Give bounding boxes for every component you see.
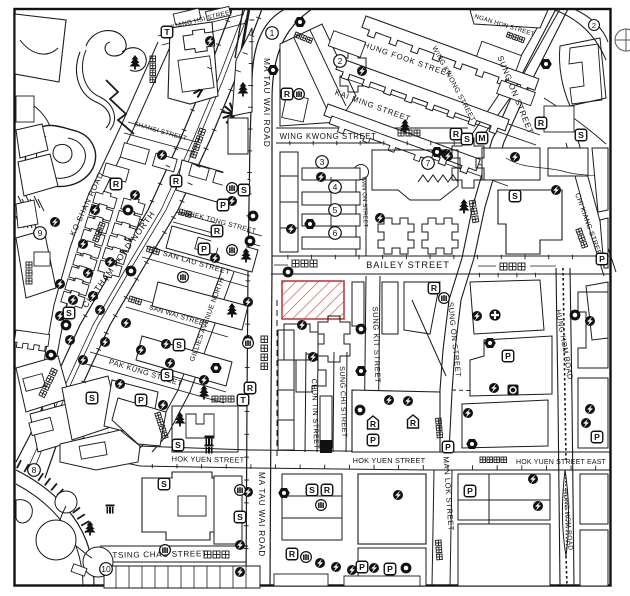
svg-text:10: 10 — [101, 564, 111, 574]
svg-text:S: S — [176, 340, 182, 350]
svg-text:8: 8 — [32, 465, 37, 475]
svg-text:R: R — [324, 485, 331, 495]
svg-text:2: 2 — [338, 56, 343, 66]
svg-text:R: R — [214, 226, 221, 236]
svg-text:S: S — [164, 370, 170, 380]
svg-text:S: S — [161, 479, 167, 489]
svg-text:S: S — [578, 130, 584, 140]
svg-text:HOK YUEN STREET: HOK YUEN STREET — [353, 456, 426, 465]
svg-text:3: 3 — [320, 157, 325, 167]
svg-text:9: 9 — [38, 228, 43, 238]
svg-text:R: R — [173, 176, 180, 186]
svg-text:HOK YUEN STREET: HOK YUEN STREET — [172, 454, 245, 464]
svg-text:5: 5 — [333, 205, 338, 215]
svg-text:P: P — [138, 395, 144, 405]
svg-text:R: R — [431, 283, 438, 293]
svg-text:MA TAU WAI ROAD: MA TAU WAI ROAD — [257, 472, 266, 557]
svg-text:2: 2 — [592, 21, 596, 30]
svg-text:S: S — [66, 308, 72, 318]
svg-text:R: R — [370, 419, 376, 429]
svg-text:BAILEY STREET: BAILEY STREET — [366, 260, 450, 270]
svg-text:R: R — [284, 89, 291, 99]
svg-text:P: P — [201, 244, 207, 254]
svg-text:R: R — [113, 179, 120, 189]
svg-text:WING KWONG STREET: WING KWONG STREET — [280, 132, 377, 141]
svg-text:1: 1 — [270, 28, 275, 38]
svg-text:P: P — [467, 486, 473, 496]
svg-text:6: 6 — [333, 228, 338, 238]
svg-text:T: T — [164, 27, 170, 37]
svg-text:P: P — [594, 432, 600, 442]
svg-text:R: R — [247, 383, 254, 393]
svg-text:P: P — [220, 200, 226, 210]
svg-text:P: P — [387, 564, 393, 574]
svg-text:S: S — [309, 485, 315, 495]
svg-text:R: R — [410, 418, 416, 428]
svg-text:M: M — [478, 133, 485, 143]
svg-text:S: S — [237, 512, 243, 522]
svg-text:S: S — [241, 185, 247, 195]
svg-text:4: 4 — [333, 182, 338, 192]
svg-text:T: T — [240, 395, 246, 405]
svg-text:P: P — [359, 562, 365, 572]
svg-text:S: S — [89, 393, 95, 403]
svg-text:P: P — [445, 442, 451, 452]
svg-text:S: S — [512, 191, 518, 201]
svg-text:P: P — [370, 435, 376, 445]
svg-text:S: S — [175, 440, 181, 450]
svg-text:HOK YUEN STREET EAST: HOK YUEN STREET EAST — [516, 459, 607, 466]
svg-text:P: P — [505, 351, 511, 361]
svg-text:S: S — [464, 134, 470, 144]
svg-text:R: R — [289, 549, 296, 559]
svg-text:R: R — [453, 129, 460, 139]
svg-text:P: P — [599, 254, 605, 264]
svg-text:7: 7 — [426, 158, 431, 168]
svg-text:R: R — [538, 118, 545, 128]
